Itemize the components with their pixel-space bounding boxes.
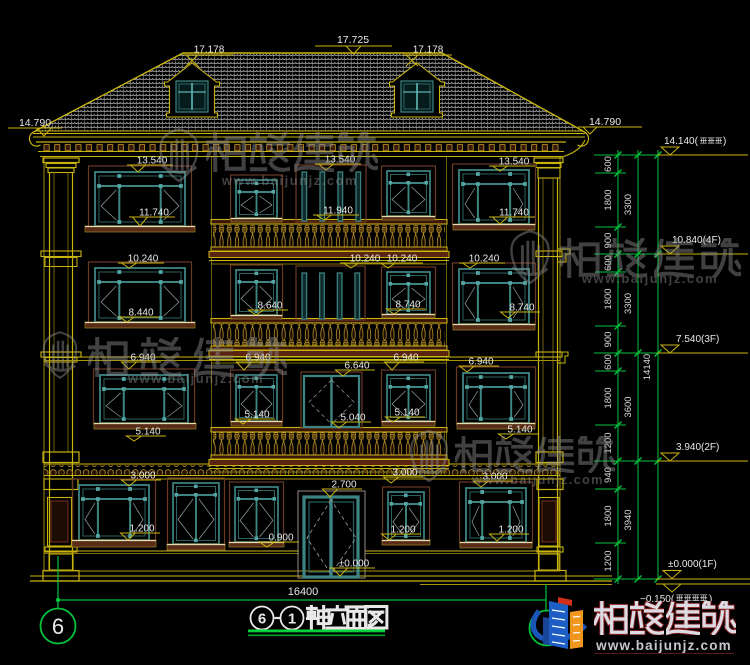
svg-text:14140: 14140 bbox=[642, 354, 653, 380]
svg-text:1: 1 bbox=[288, 611, 296, 628]
svg-text:1200: 1200 bbox=[603, 550, 614, 571]
svg-text:www.baijunjz.com: www.baijunjz.com bbox=[221, 173, 358, 188]
svg-text:): ) bbox=[723, 136, 726, 147]
svg-text:14.790: 14.790 bbox=[19, 117, 51, 129]
svg-text:www.baijunjz.com: www.baijunjz.com bbox=[471, 473, 604, 487]
svg-text:16400: 16400 bbox=[288, 586, 319, 598]
svg-text:www.baijunjz.com: www.baijunjz.com bbox=[127, 371, 264, 386]
svg-text:3.940(2F): 3.940(2F) bbox=[676, 442, 719, 453]
svg-text:600: 600 bbox=[603, 354, 614, 370]
svg-text:14.140(: 14.140( bbox=[664, 136, 699, 147]
svg-text:3940: 3940 bbox=[623, 509, 634, 530]
svg-text:www.baijunjz.com: www.baijunjz.com bbox=[595, 638, 732, 653]
svg-text:1800: 1800 bbox=[603, 387, 614, 408]
svg-text:3300: 3300 bbox=[623, 293, 634, 314]
svg-text:www.baijunjz.com: www.baijunjz.com bbox=[581, 271, 718, 286]
svg-text:±0.000(1F): ±0.000(1F) bbox=[668, 559, 717, 570]
svg-text:1800: 1800 bbox=[603, 505, 614, 526]
svg-text:3600: 3600 bbox=[623, 396, 634, 417]
svg-text:14.790: 14.790 bbox=[589, 116, 621, 128]
svg-text:17.178: 17.178 bbox=[413, 45, 444, 56]
svg-text:17.178: 17.178 bbox=[194, 45, 225, 56]
svg-text:6: 6 bbox=[52, 614, 64, 639]
svg-text:6: 6 bbox=[258, 611, 266, 628]
svg-text:7.540(3F): 7.540(3F) bbox=[676, 334, 719, 345]
svg-text:3300: 3300 bbox=[623, 194, 634, 215]
svg-text:900: 900 bbox=[603, 332, 614, 348]
svg-text:600: 600 bbox=[603, 156, 614, 172]
svg-text:17.725: 17.725 bbox=[337, 34, 369, 46]
svg-text:1800: 1800 bbox=[603, 288, 614, 309]
svg-text:1800: 1800 bbox=[603, 189, 614, 210]
